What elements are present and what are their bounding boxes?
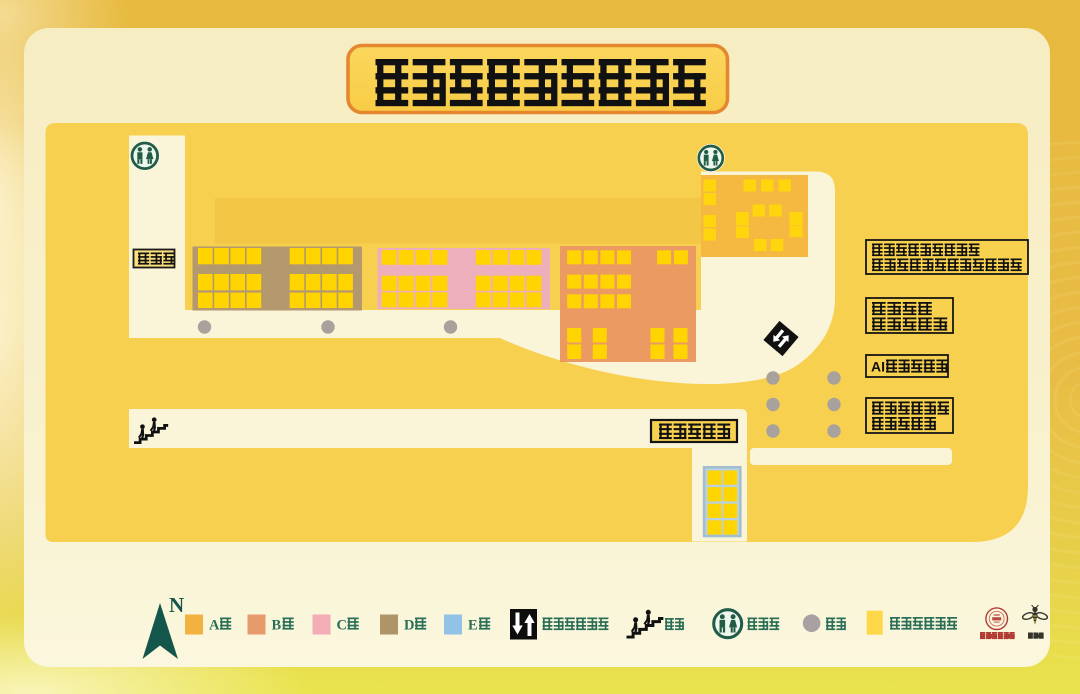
- svg-text:E: E: [468, 618, 478, 634]
- svg-text:C: C: [337, 618, 347, 634]
- svg-text:D: D: [404, 618, 414, 634]
- svg-text:B: B: [272, 618, 282, 634]
- svg-text:N: N: [169, 593, 184, 617]
- svg-text:AI: AI: [871, 359, 885, 375]
- svg-text:A: A: [209, 618, 220, 634]
